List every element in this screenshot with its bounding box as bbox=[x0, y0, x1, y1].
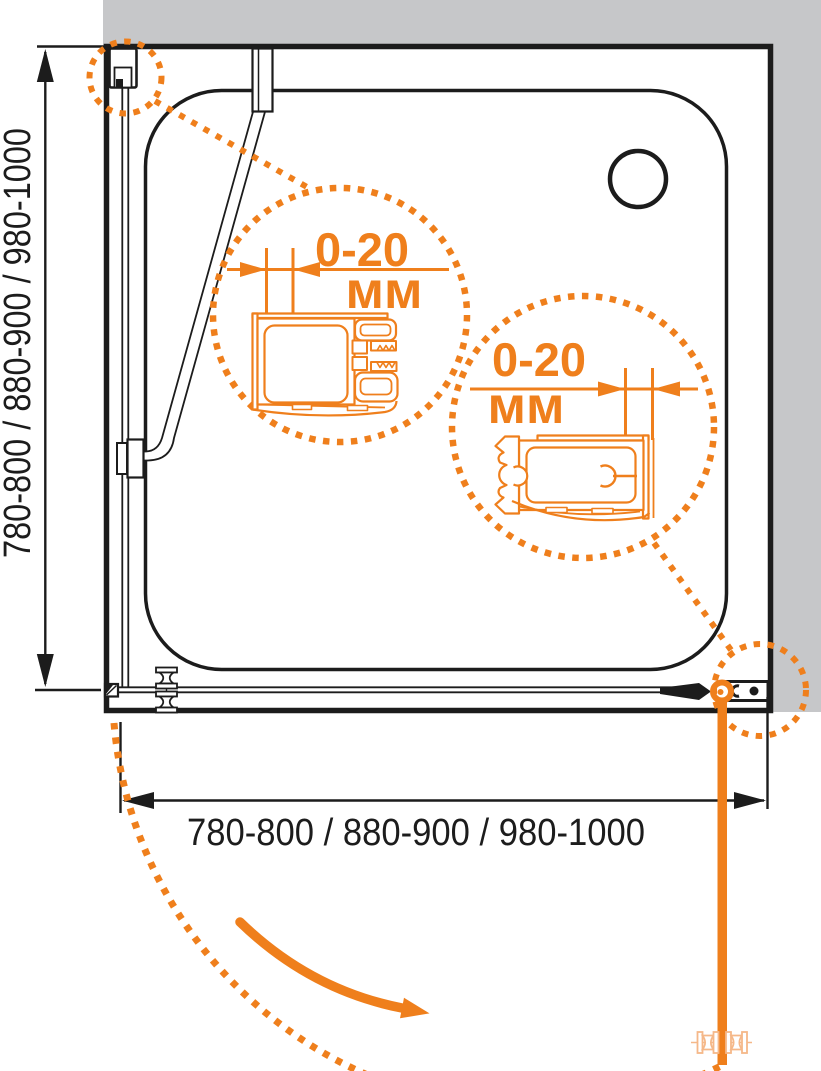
arrowhead-down-icon bbox=[37, 654, 54, 687]
door-knob bbox=[156, 667, 177, 713]
swing-arc bbox=[114, 723, 723, 1071]
technical-diagram: 780-800 / 880-900 / 980-1000 780-800 / 8… bbox=[0, 0, 821, 1071]
shower-diagram-canvas: 780-800 / 880-900 / 980-1000 780-800 / 8… bbox=[0, 0, 821, 1071]
height-dimension-label: 780-800 / 880-900 / 980-1000 bbox=[0, 128, 39, 558]
tray-outline bbox=[146, 91, 727, 670]
dimension-vertical: 780-800 / 880-900 / 980-1000 bbox=[0, 47, 104, 691]
open-door-panel bbox=[718, 696, 728, 1065]
support-bar-wall-bracket bbox=[128, 440, 144, 478]
profile-section-right bbox=[496, 436, 654, 521]
arrowhead-up-icon bbox=[37, 49, 54, 82]
support-bar-wall-bracket-back bbox=[117, 443, 127, 474]
door-closed bbox=[105, 667, 711, 713]
fixed-panel-glass bbox=[122, 86, 128, 688]
callout-left-unit: мм bbox=[346, 262, 423, 320]
arrowhead-right-icon bbox=[734, 792, 766, 809]
dimension-horizontal: 780-800 / 880-900 / 980-1000 bbox=[121, 697, 768, 854]
swing-arrow-icon bbox=[400, 998, 430, 1019]
wall-right bbox=[770, 0, 821, 712]
wall-top bbox=[103, 0, 821, 46]
wall-profile-top bbox=[110, 49, 137, 88]
support-bar-top-bracket bbox=[253, 49, 273, 112]
profile-section-left bbox=[253, 314, 398, 416]
shower-tray bbox=[146, 91, 727, 670]
swing-arrow-shaft bbox=[240, 922, 402, 1008]
door-corner-bracket bbox=[105, 684, 118, 697]
door-open-position bbox=[691, 683, 752, 1066]
width-dimension-label: 780-800 / 880-900 / 980-1000 bbox=[187, 812, 645, 854]
door-swing bbox=[114, 723, 723, 1071]
door-edge-profile bbox=[660, 683, 711, 700]
callout-right-unit: мм bbox=[488, 377, 565, 435]
